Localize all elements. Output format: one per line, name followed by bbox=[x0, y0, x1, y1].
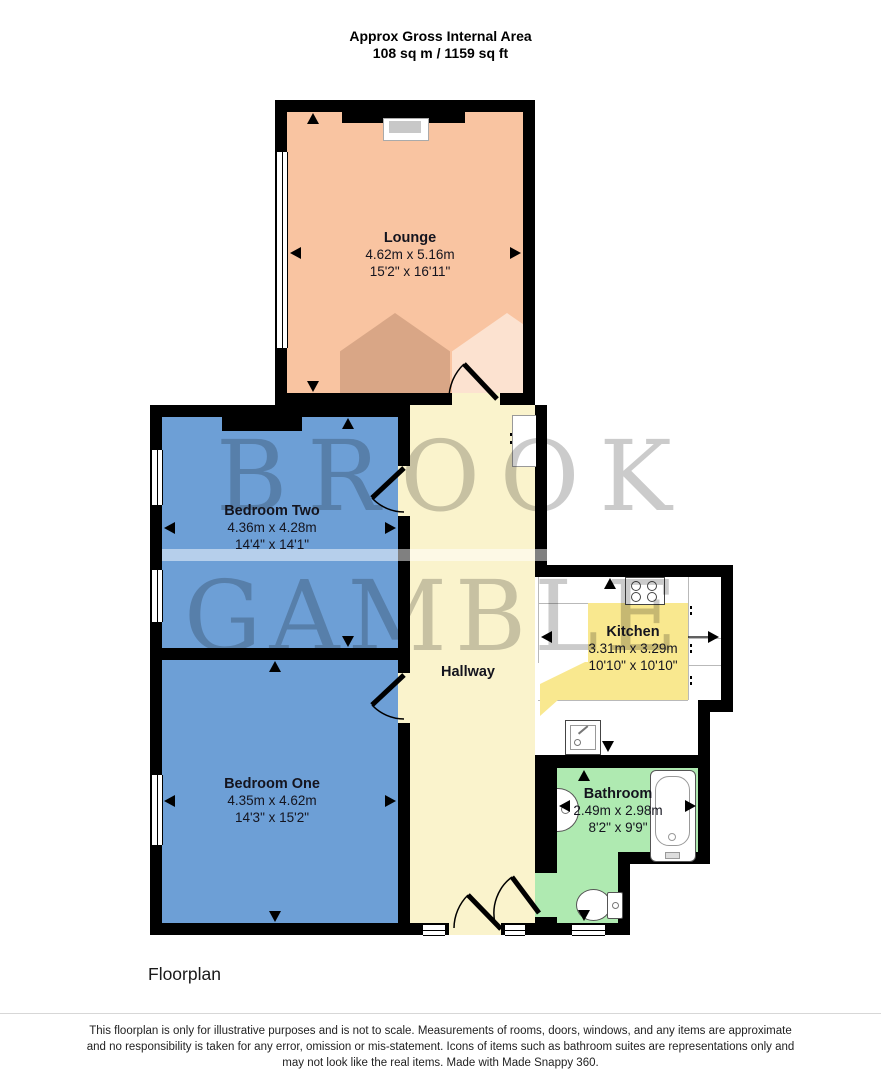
window-hall-bottom-b bbox=[505, 924, 525, 936]
cabinet-mark bbox=[690, 612, 692, 615]
window-lounge-left bbox=[276, 152, 288, 348]
room-dim-imperial: 15'2" x 16'11" bbox=[330, 264, 490, 281]
window-bedroom-two-a bbox=[151, 450, 163, 505]
room-name: Bedroom Two bbox=[192, 503, 352, 520]
fireplace-hearth bbox=[389, 121, 421, 133]
kitchen-sink-icon bbox=[565, 720, 601, 755]
lounge-door-opening bbox=[452, 393, 500, 405]
page-title-line2: 108 sq m / 1159 sq ft bbox=[0, 45, 881, 62]
watermark-house-light-icon bbox=[452, 313, 523, 393]
cabinet-mark bbox=[690, 682, 692, 685]
disclaimer-line2: and no responsibility is taken for any e… bbox=[60, 1040, 821, 1056]
room-dim-imperial: 8'2" x 9'9" bbox=[528, 820, 708, 837]
wall bbox=[523, 100, 535, 405]
window-bathroom-bottom bbox=[572, 924, 605, 936]
room-dim-metric: 3.31m x 3.29m bbox=[553, 641, 713, 658]
page-title-line1: Approx Gross Internal Area bbox=[0, 28, 881, 45]
hallway-label: Hallway bbox=[408, 664, 528, 681]
toilet-icon bbox=[576, 889, 611, 921]
room-name: Bathroom bbox=[528, 786, 708, 803]
wall bbox=[275, 100, 535, 112]
disclaimer-line3: may not look like the real items. Made w… bbox=[60, 1056, 821, 1072]
bedroom-two-label: Bedroom Two 4.36m x 4.28m 14'4" x 14'1" bbox=[192, 503, 352, 553]
room-dim-metric: 4.35m x 4.62m bbox=[192, 793, 352, 810]
wall bbox=[721, 565, 733, 705]
room-name: Bedroom One bbox=[192, 776, 352, 793]
room-dim-imperial: 14'4" x 14'1" bbox=[192, 537, 352, 554]
window-bedroom-one bbox=[151, 775, 163, 845]
window-bedroom-two-b bbox=[151, 570, 163, 622]
room-dim-imperial: 14'3" x 15'2" bbox=[192, 810, 352, 827]
entrance-door-opening bbox=[449, 923, 501, 935]
counter-edge bbox=[538, 700, 688, 701]
fireplace-icon bbox=[383, 118, 429, 141]
floorplan-page: Approx Gross Internal Area 108 sq m / 11… bbox=[0, 0, 881, 1080]
bedroom-one-label: Bedroom One 4.35m x 4.62m 14'3" x 15'2" bbox=[192, 776, 352, 826]
sink-drain bbox=[574, 739, 581, 746]
room-dim-metric: 4.36m x 4.28m bbox=[192, 520, 352, 537]
toilet-flush bbox=[612, 902, 619, 909]
room-dim-metric: 4.62m x 5.16m bbox=[330, 247, 490, 264]
wall bbox=[150, 405, 410, 417]
cabinet-mark bbox=[690, 676, 692, 679]
window-hall-bottom-a bbox=[423, 924, 445, 936]
watermark-house-dark-icon bbox=[340, 313, 450, 393]
toilet-cistern bbox=[607, 892, 623, 919]
lounge-label: Lounge 4.62m x 5.16m 15'2" x 16'11" bbox=[330, 230, 490, 280]
kitchen-label: Kitchen 3.31m x 3.29m 10'10" x 10'10" bbox=[553, 624, 713, 674]
bathroom-door-opening bbox=[535, 873, 557, 917]
footer-divider bbox=[0, 1013, 881, 1014]
room-dim-metric: 2.49m x 2.98m bbox=[528, 803, 708, 820]
wall bbox=[150, 923, 630, 935]
bathroom-label: Bathroom 2.49m x 2.98m 8'2" x 9'9" bbox=[528, 786, 708, 836]
room-name: Lounge bbox=[330, 230, 490, 247]
room-name: Kitchen bbox=[553, 624, 713, 641]
floorplan-caption: Floorplan bbox=[148, 964, 221, 985]
disclaimer-line1: This floorplan is only for illustrative … bbox=[60, 1024, 821, 1040]
cabinet-mark bbox=[690, 606, 692, 609]
room-name: Hallway bbox=[408, 664, 528, 681]
bathtub-tap bbox=[665, 852, 680, 859]
room-dim-imperial: 10'10" x 10'10" bbox=[553, 658, 713, 675]
wall bbox=[535, 755, 710, 768]
